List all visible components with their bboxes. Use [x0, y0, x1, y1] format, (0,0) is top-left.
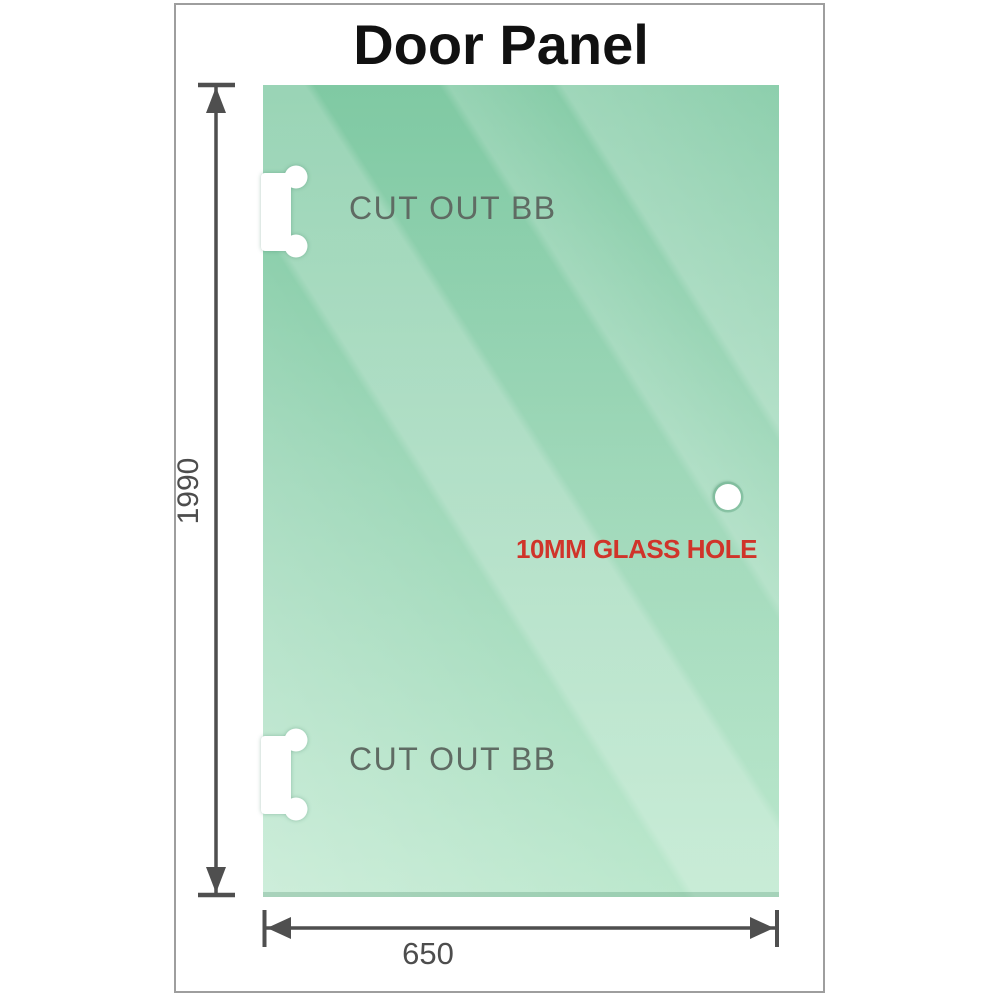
hinge-cutout-top-icon: [261, 164, 311, 260]
height-dimension-label: 1990: [173, 421, 205, 561]
cutout-label-top: CUT OUT BB: [349, 190, 557, 227]
glass-hole-icon: [715, 484, 741, 510]
width-dimension-label: 650: [378, 936, 478, 972]
glass-hole-label: 10MM GLASS HOLE: [516, 534, 757, 565]
hinge-cutout-bottom-icon: [261, 727, 311, 823]
door-panel-diagram: Door Panel CUT OUT BB CUT OUT BB 10MM GL…: [0, 0, 1000, 1000]
cutout-label-bottom: CUT OUT BB: [349, 741, 557, 778]
page-title: Door Panel: [175, 12, 827, 77]
